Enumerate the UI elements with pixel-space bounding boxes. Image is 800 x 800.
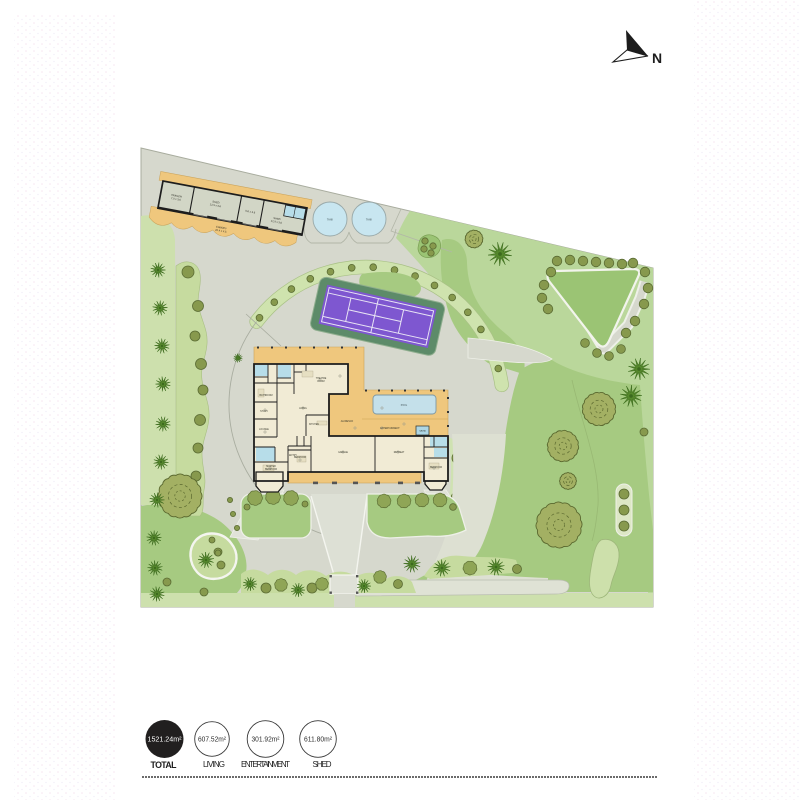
svg-text:GARAGE: GARAGE [338, 451, 348, 454]
svg-text:BEDROOM: BEDROOM [430, 467, 442, 469]
svg-text:BEDROOM: BEDROOM [265, 469, 277, 471]
svg-text:1521.24m²: 1521.24m² [148, 737, 183, 744]
svg-text:611.80m²: 611.80m² [304, 737, 333, 744]
svg-text:LOUNGE: LOUNGE [259, 429, 269, 431]
svg-text:ALFRESCO: ALFRESCO [341, 420, 354, 423]
svg-text:SHED: SHED [313, 760, 332, 769]
svg-text:ROOM: ROOM [317, 381, 324, 383]
svg-text:301.92m²: 301.92m² [252, 737, 281, 744]
svg-text:BEDROOM: BEDROOM [294, 457, 306, 459]
svg-text:N: N [652, 50, 662, 66]
svg-text:TANK: TANK [327, 219, 334, 222]
svg-text:KITCHEN: KITCHEN [309, 424, 319, 426]
svg-text:TANK: TANK [366, 219, 373, 222]
svg-text:LIVING: LIVING [203, 760, 225, 769]
svg-text:SAUNA: SAUNA [419, 430, 426, 433]
svg-text:607.52m²: 607.52m² [198, 737, 227, 744]
svg-text:STUDY: STUDY [260, 411, 268, 413]
svg-text:THEATRE: THEATRE [316, 377, 327, 380]
svg-text:RETREAT: RETREAT [394, 451, 405, 454]
svg-text:POOL: POOL [401, 405, 408, 407]
svg-text:TOTAL: TOTAL [151, 760, 178, 770]
svg-text:BATHROOM: BATHROOM [259, 394, 272, 397]
svg-text:MASTER: MASTER [266, 465, 276, 468]
svg-text:ENTERTAINMENT: ENTERTAINMENT [241, 760, 290, 769]
svg-text:ENTRY: ENTRY [289, 455, 297, 457]
svg-text:LIVING: LIVING [299, 408, 307, 410]
svg-text:ENTERTAINMENT: ENTERTAINMENT [380, 427, 400, 430]
